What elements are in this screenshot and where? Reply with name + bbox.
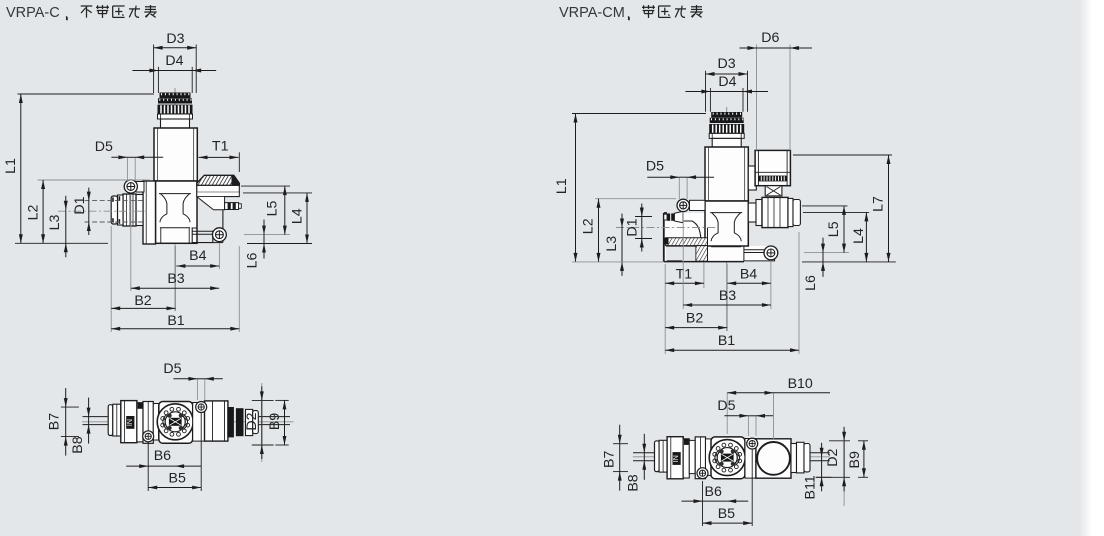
svg-text:L3: L3 (604, 236, 620, 252)
svg-text:T1: T1 (212, 138, 229, 154)
svg-text:L6: L6 (803, 275, 819, 291)
svg-text:L4: L4 (290, 208, 306, 224)
svg-text:L6: L6 (245, 253, 261, 269)
svg-text:B4: B4 (189, 248, 206, 264)
svg-text:B10: B10 (788, 376, 813, 392)
svg-text:B4: B4 (740, 267, 757, 283)
svg-text:B9: B9 (847, 451, 863, 468)
svg-text:D5: D5 (717, 398, 735, 414)
svg-text:D3: D3 (166, 31, 184, 47)
svg-text:L2: L2 (25, 205, 41, 221)
svg-text:IN: IN (127, 419, 134, 426)
svg-text:B2: B2 (134, 293, 151, 309)
svg-text:B9: B9 (267, 413, 283, 430)
svg-text:L7: L7 (871, 196, 887, 212)
svg-text:B3: B3 (719, 288, 736, 304)
svg-text:D1: D1 (72, 196, 88, 214)
svg-text:B3: B3 (167, 271, 184, 287)
svg-text:L5: L5 (265, 201, 281, 217)
svg-text:VRPA-CM: VRPA-CM (559, 5, 625, 21)
svg-text:L3: L3 (47, 215, 63, 231)
svg-text:T1: T1 (676, 267, 693, 283)
svg-text:B7: B7 (602, 451, 618, 468)
svg-text:B5: B5 (169, 470, 186, 486)
svg-text:B6: B6 (705, 484, 722, 500)
svg-text:B1: B1 (167, 313, 184, 329)
svg-text:B8: B8 (70, 436, 86, 453)
svg-text:IN: IN (673, 455, 680, 462)
svg-text:L4: L4 (851, 228, 867, 244)
svg-text:B1: B1 (718, 333, 735, 349)
svg-text:L1: L1 (554, 178, 570, 194)
svg-text:B6: B6 (154, 448, 171, 464)
svg-text:D5: D5 (163, 361, 181, 377)
svg-text:B2: B2 (686, 311, 703, 327)
svg-text:B7: B7 (47, 413, 63, 430)
svg-text:D6: D6 (761, 30, 779, 46)
svg-text:VRPA-C: VRPA-C (6, 5, 60, 21)
svg-text:D2: D2 (244, 412, 260, 430)
svg-text:L1: L1 (3, 158, 19, 174)
svg-text:L2: L2 (580, 218, 596, 234)
svg-text:D4: D4 (718, 74, 736, 90)
svg-text:B8: B8 (626, 474, 642, 491)
svg-text:B11: B11 (803, 475, 819, 499)
svg-text:D1: D1 (625, 218, 641, 236)
svg-text:L5: L5 (826, 221, 842, 237)
svg-text:D2: D2 (825, 449, 841, 467)
svg-text:B5: B5 (718, 506, 735, 522)
svg-text:D4: D4 (165, 53, 183, 69)
svg-text:D3: D3 (718, 56, 736, 72)
svg-text:D5: D5 (646, 159, 664, 175)
svg-text:D5: D5 (95, 139, 113, 155)
